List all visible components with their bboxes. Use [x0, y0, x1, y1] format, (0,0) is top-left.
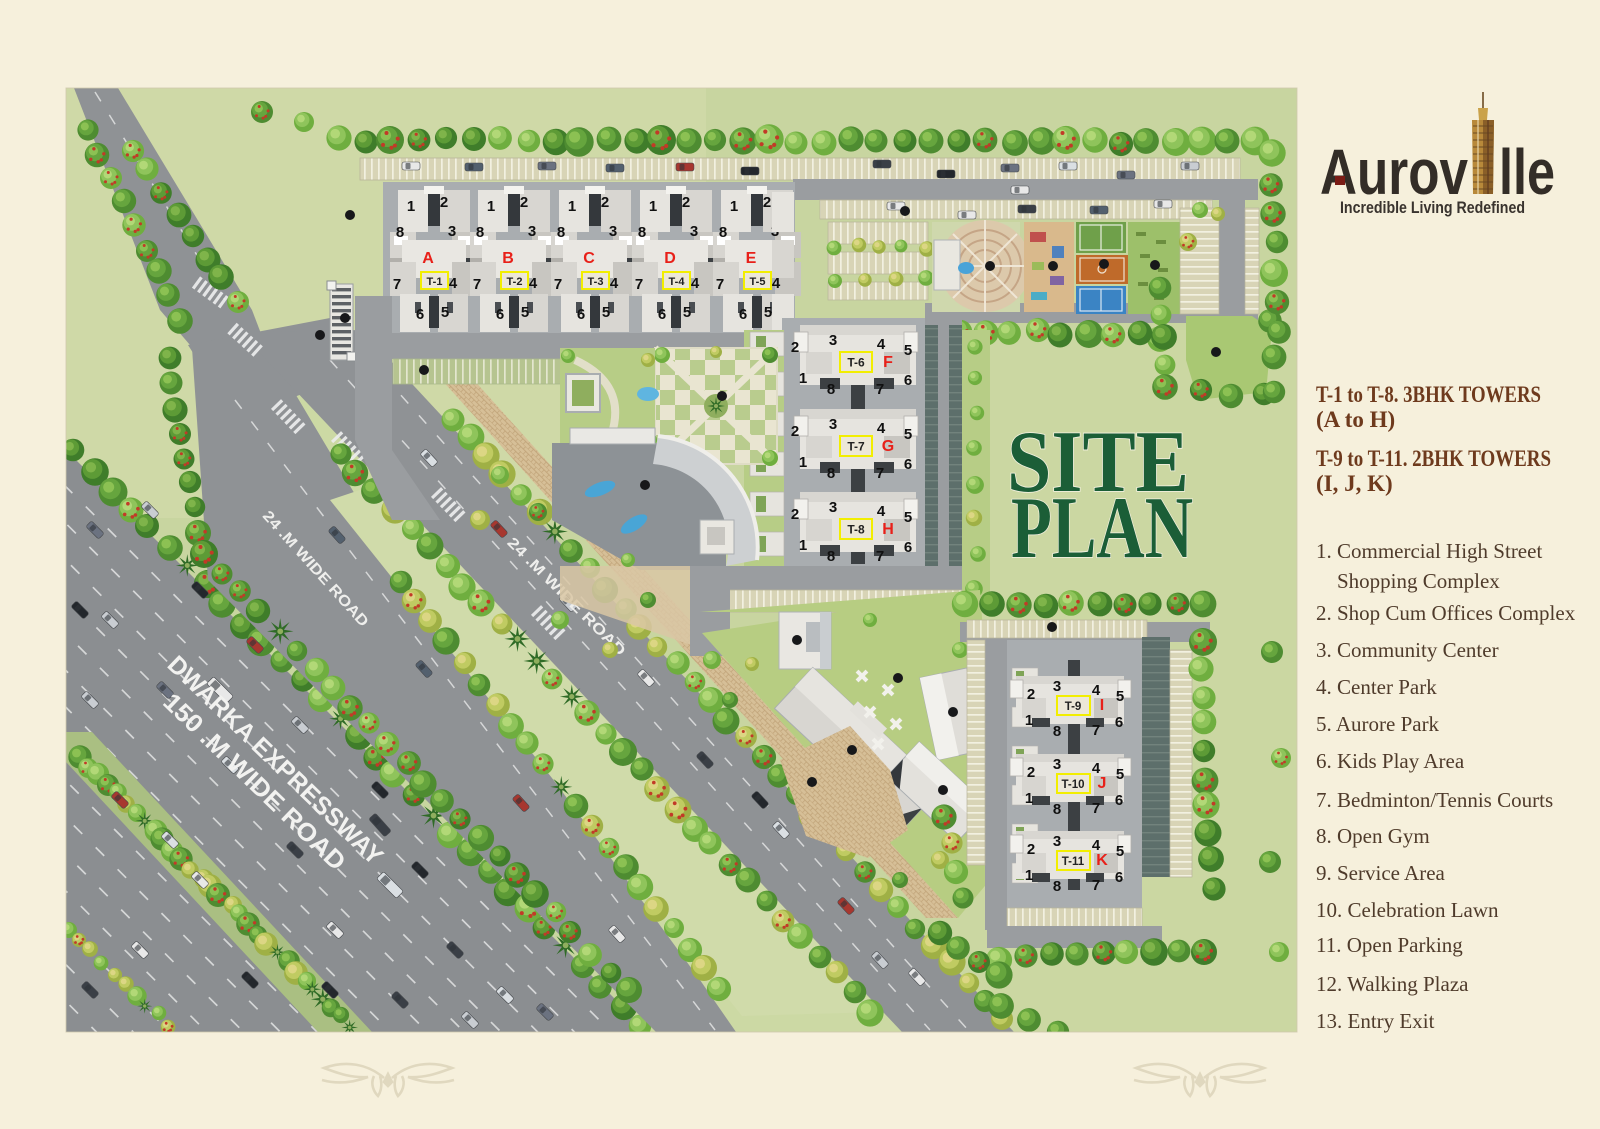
svg-text:8: 8: [476, 224, 484, 241]
svg-text:5: 5: [1116, 766, 1124, 783]
svg-text:1: 1: [1025, 712, 1033, 729]
svg-text:6: 6: [1115, 792, 1123, 809]
svg-text:7: 7: [473, 276, 481, 293]
svg-text:A: A: [422, 250, 434, 267]
svg-text:6: 6: [496, 306, 504, 323]
svg-text:2: 2: [791, 339, 799, 356]
svg-text:5: 5: [602, 304, 610, 321]
svg-text:Aurov: Aurov: [1320, 136, 1468, 208]
svg-text:5: 5: [441, 304, 449, 321]
svg-text:T-11: T-11: [1062, 856, 1085, 868]
svg-text:6: 6: [904, 539, 912, 556]
svg-text:2: 2: [763, 194, 771, 211]
svg-text:5. Aurore Park: 5. Aurore Park: [1316, 712, 1440, 736]
svg-text:H: H: [882, 521, 894, 538]
svg-text:T-2: T-2: [507, 276, 523, 288]
svg-text:I: I: [1100, 697, 1104, 714]
svg-text:3: 3: [829, 332, 837, 349]
svg-text:5: 5: [904, 509, 912, 526]
svg-text:T-6: T-6: [847, 356, 865, 370]
svg-text:1. Commercial High Street: 1. Commercial High Street: [1316, 539, 1542, 563]
svg-text:2: 2: [1027, 764, 1035, 781]
svg-text:6: 6: [577, 306, 585, 323]
svg-text:3: 3: [528, 223, 536, 240]
svg-text:4: 4: [610, 275, 619, 292]
svg-text:(A to H): (A to H): [1316, 407, 1395, 432]
svg-text:T-9 to T-11. 2BHK TOWERS: T-9 to T-11. 2BHK TOWERS: [1316, 446, 1551, 471]
svg-text:K: K: [1096, 852, 1108, 869]
svg-text:5: 5: [764, 304, 772, 321]
svg-text:6: 6: [1115, 714, 1123, 731]
svg-text:8: 8: [1053, 801, 1061, 818]
svg-text:1: 1: [1025, 867, 1033, 884]
svg-text:8: 8: [719, 224, 727, 241]
svg-text:4: 4: [877, 420, 886, 437]
svg-text:E: E: [746, 250, 757, 267]
svg-text:6: 6: [1115, 869, 1123, 886]
svg-text:8: 8: [638, 224, 646, 241]
svg-text:2: 2: [1027, 841, 1035, 858]
svg-text:PLAN: PLAN: [1011, 480, 1193, 577]
svg-text:4: 4: [529, 275, 538, 292]
svg-text:2: 2: [520, 194, 528, 211]
svg-text:5: 5: [683, 304, 691, 321]
svg-text:8: 8: [1053, 878, 1061, 895]
svg-text:6: 6: [904, 456, 912, 473]
svg-text:7: 7: [554, 276, 562, 293]
svg-text:1: 1: [799, 370, 807, 387]
svg-text:F: F: [883, 354, 893, 371]
svg-text:B: B: [502, 250, 514, 267]
svg-text:(I, J, K): (I, J, K): [1316, 471, 1393, 496]
svg-text:12. Walking Plaza: 12. Walking Plaza: [1316, 972, 1469, 996]
svg-text:3: 3: [1053, 678, 1061, 695]
svg-text:6. Kids Play Area: 6. Kids Play Area: [1316, 749, 1465, 773]
svg-text:8: 8: [827, 548, 835, 565]
svg-text:2: 2: [791, 506, 799, 523]
svg-text:4: 4: [691, 275, 700, 292]
svg-text:8: 8: [396, 224, 404, 241]
svg-text:7: 7: [876, 548, 884, 565]
svg-text:T-3: T-3: [588, 276, 604, 288]
svg-text:T-7: T-7: [847, 440, 865, 454]
svg-text:1: 1: [730, 198, 738, 215]
svg-text:7: 7: [876, 465, 884, 482]
svg-text:Incredible Living Redefined: Incredible Living Redefined: [1340, 199, 1525, 217]
svg-text:3. Community Center: 3. Community Center: [1316, 638, 1499, 662]
svg-text:T-1 to T-8. 3BHK TOWERS: T-1 to T-8. 3BHK TOWERS: [1316, 382, 1541, 407]
svg-text:J: J: [1098, 775, 1107, 792]
svg-text:7: 7: [716, 276, 724, 293]
svg-text:G: G: [882, 438, 894, 455]
svg-text:5: 5: [904, 342, 912, 359]
svg-text:1: 1: [568, 198, 576, 215]
svg-text:7: 7: [635, 276, 643, 293]
svg-text:7. Bedminton/Tennis Courts: 7. Bedminton/Tennis Courts: [1316, 788, 1553, 812]
svg-text:T-5: T-5: [750, 276, 766, 288]
svg-text:4: 4: [877, 336, 886, 353]
svg-text:13. Entry Exit: 13. Entry Exit: [1316, 1009, 1435, 1033]
svg-text:T-8: T-8: [847, 523, 865, 537]
svg-text:T-1: T-1: [427, 276, 443, 288]
svg-text:D: D: [664, 250, 676, 267]
svg-text:2: 2: [682, 194, 690, 211]
svg-text:lle: lle: [1499, 136, 1555, 208]
svg-text:6: 6: [739, 306, 747, 323]
svg-text:1: 1: [799, 537, 807, 554]
svg-text:T-10: T-10: [1061, 779, 1084, 791]
svg-text:2: 2: [440, 194, 448, 211]
svg-text:4. Center Park: 4. Center Park: [1316, 675, 1437, 699]
svg-text:2: 2: [1027, 686, 1035, 703]
svg-text:3: 3: [690, 223, 698, 240]
svg-text:11. Open Parking: 11. Open Parking: [1316, 933, 1463, 957]
svg-text:7: 7: [1092, 877, 1100, 894]
svg-text:3: 3: [1053, 833, 1061, 850]
svg-text:2: 2: [601, 194, 609, 211]
svg-text:3: 3: [609, 223, 617, 240]
svg-text:8: 8: [1053, 723, 1061, 740]
svg-text:7: 7: [1092, 722, 1100, 739]
svg-text:7: 7: [1092, 800, 1100, 817]
svg-text:1: 1: [407, 198, 415, 215]
svg-text:6: 6: [904, 372, 912, 389]
svg-text:5: 5: [1116, 688, 1124, 705]
svg-text:5: 5: [521, 304, 529, 321]
svg-text:6: 6: [416, 306, 424, 323]
svg-text:3: 3: [1053, 756, 1061, 773]
svg-text:2: 2: [791, 423, 799, 440]
svg-text:1: 1: [487, 198, 495, 215]
svg-text:5: 5: [904, 426, 912, 443]
svg-text:3: 3: [829, 416, 837, 433]
svg-text:C: C: [583, 250, 595, 267]
svg-text:Shopping Complex: Shopping Complex: [1337, 569, 1500, 593]
svg-text:9. Service Area: 9. Service Area: [1316, 861, 1446, 885]
svg-text:T-9: T-9: [1065, 701, 1082, 713]
svg-text:7: 7: [876, 381, 884, 398]
svg-text:10. Celebration Lawn: 10. Celebration Lawn: [1316, 898, 1499, 922]
svg-text:8: 8: [827, 465, 835, 482]
svg-text:8: 8: [557, 224, 565, 241]
svg-text:4: 4: [449, 275, 458, 292]
svg-text:2. Shop Cum Offices Complex: 2. Shop Cum Offices Complex: [1316, 601, 1576, 625]
svg-text:T-4: T-4: [669, 276, 686, 288]
svg-text:3: 3: [829, 499, 837, 516]
svg-text:5: 5: [1116, 843, 1124, 860]
svg-text:3: 3: [448, 223, 456, 240]
svg-text:1: 1: [799, 454, 807, 471]
svg-text:8: 8: [827, 381, 835, 398]
svg-text:7: 7: [393, 276, 401, 293]
svg-text:1: 1: [649, 198, 657, 215]
svg-text:8. Open Gym: 8. Open Gym: [1316, 824, 1430, 848]
svg-text:1: 1: [1025, 790, 1033, 807]
svg-text:6: 6: [658, 306, 666, 323]
svg-text:4: 4: [877, 503, 886, 520]
